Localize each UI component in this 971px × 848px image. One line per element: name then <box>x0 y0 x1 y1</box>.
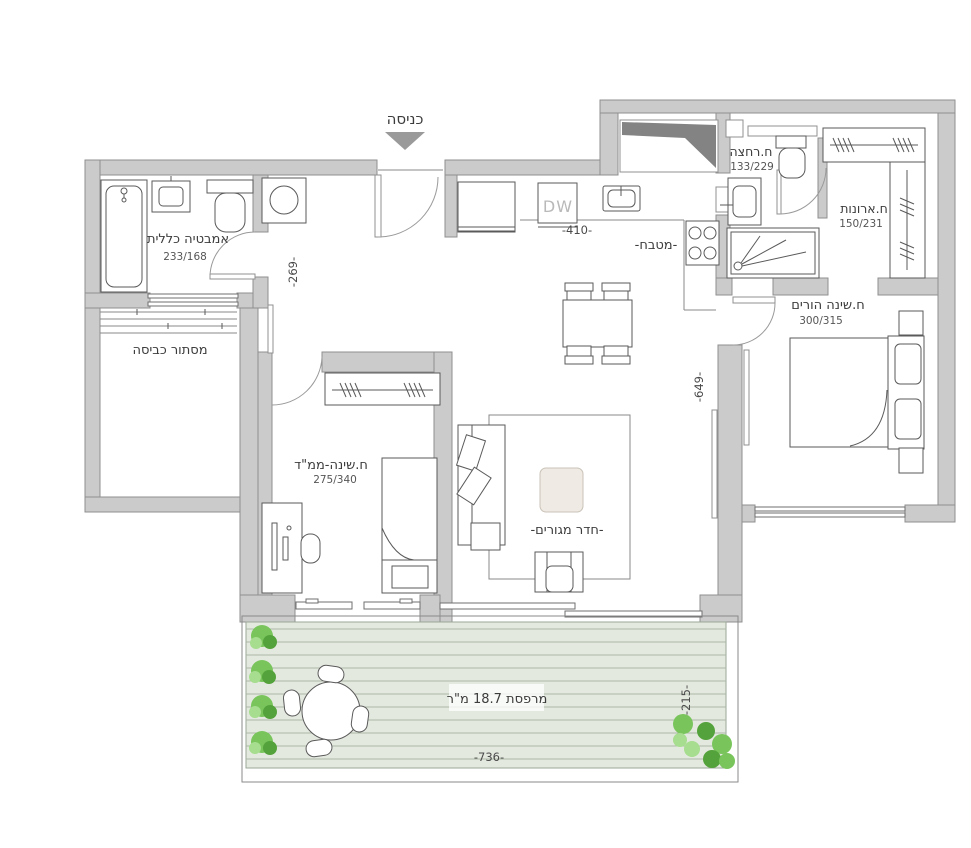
mamad-door-leaf <box>268 305 273 353</box>
room-dims-closet: 150/231 <box>839 218 883 230</box>
dining-chair <box>565 356 593 364</box>
keyboard <box>283 537 288 560</box>
room-dims-bath-main: 233/168 <box>163 251 207 263</box>
master-bedroom <box>712 311 924 518</box>
toilet <box>207 180 253 193</box>
laundry-rack <box>100 309 237 333</box>
shelf <box>748 126 817 136</box>
room-label-bath-main: אמבטיה כללית <box>147 232 229 247</box>
floor-plan-svg: כניסה <box>0 0 971 848</box>
entrance-mark: כניסה <box>385 110 425 150</box>
room-label-laundry: מסתור כביסה <box>132 343 207 358</box>
entry-door-leaf <box>375 175 381 237</box>
room-dims-master: 300/315 <box>799 315 843 327</box>
desk <box>262 503 302 593</box>
room-dims-mamad: 275/340 <box>313 474 357 486</box>
toilet2 <box>776 136 806 148</box>
coffee-table <box>540 468 583 512</box>
room-label-master: ח.שינה הורים <box>791 298 864 313</box>
balcony-sliding-door <box>440 603 575 609</box>
mamad-window <box>296 602 352 609</box>
entrance-arrow-icon <box>385 132 425 150</box>
cooktop <box>686 221 719 265</box>
master-door-arc <box>733 303 775 345</box>
dim-balcony-width: -736- <box>474 750 504 764</box>
shaft <box>620 120 718 172</box>
bathtub-tap-icon <box>121 188 127 194</box>
room-label-kitchen: -מטבח- <box>635 238 678 253</box>
dishwasher-label: DW <box>543 197 573 216</box>
room-label-mamad: ח.שינה-ממ"ד <box>294 458 368 473</box>
nightstand <box>899 311 923 335</box>
room-label-closet: ח.ארונות <box>840 201 888 216</box>
living-room <box>457 283 632 592</box>
mamad-door-arc <box>272 357 322 405</box>
room-label-bath-shower: ח.רחצה <box>730 144 773 159</box>
room-dims-bath-shower: 133/229 <box>730 161 774 173</box>
dining-chair <box>565 283 593 291</box>
mouse-icon <box>287 526 291 530</box>
wall-panel <box>712 410 717 518</box>
dim-living: -649- <box>692 372 706 402</box>
patio-table <box>302 682 360 740</box>
dim-kitchen: -410- <box>562 223 592 237</box>
dim-balcony-depth: -215- <box>679 685 693 715</box>
side-table <box>471 523 500 550</box>
pillow <box>895 399 921 439</box>
single-bed <box>382 458 437 560</box>
shower-door-leaf <box>777 170 781 214</box>
dining-table <box>563 300 632 347</box>
pillow <box>895 344 921 384</box>
floor-plan: כניסה <box>0 0 971 848</box>
dim-hall: -269- <box>286 257 300 287</box>
nightstand <box>899 448 923 473</box>
desk-chair <box>301 534 320 563</box>
wall-panel <box>744 350 749 445</box>
entry-door-arc <box>378 177 438 237</box>
room-label-living: -חדר מגורים- <box>530 523 603 538</box>
dining-chair <box>602 356 630 364</box>
entrance-label: כניסה <box>387 110 424 128</box>
shower-drain-icon <box>734 262 742 270</box>
master-window <box>755 507 905 511</box>
fridge <box>458 182 515 232</box>
master-door-leaf <box>733 297 775 303</box>
room-label-balcony: מרפסת 18.7 מ"ר <box>447 692 548 707</box>
patio-chair <box>283 689 302 717</box>
bath-door-leaf <box>210 274 255 279</box>
dining-chair <box>602 283 630 291</box>
monitor <box>272 523 277 570</box>
